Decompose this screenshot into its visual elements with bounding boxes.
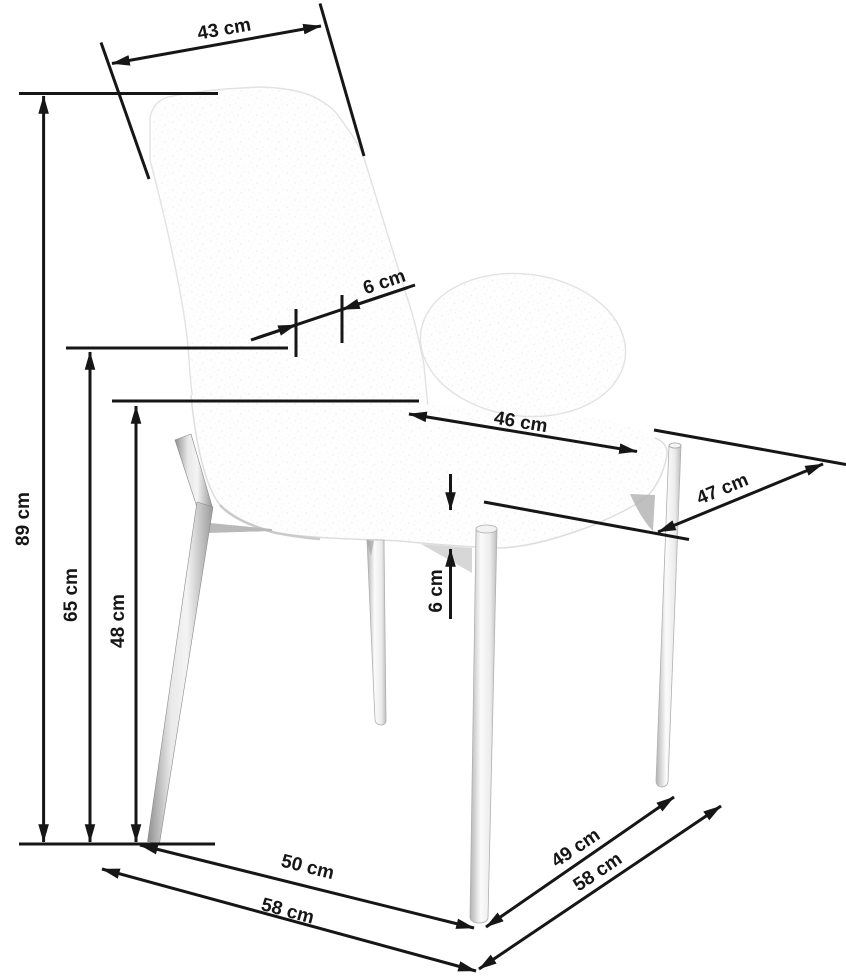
- svg-text:47 cm: 47 cm: [694, 469, 752, 509]
- svg-text:58 cm: 58 cm: [259, 894, 316, 928]
- svg-text:89 cm: 89 cm: [13, 492, 34, 546]
- svg-text:50 cm: 50 cm: [279, 851, 336, 884]
- svg-text:6 cm: 6 cm: [426, 569, 447, 612]
- svg-text:48 cm: 48 cm: [108, 594, 129, 648]
- svg-text:65 cm: 65 cm: [61, 568, 82, 622]
